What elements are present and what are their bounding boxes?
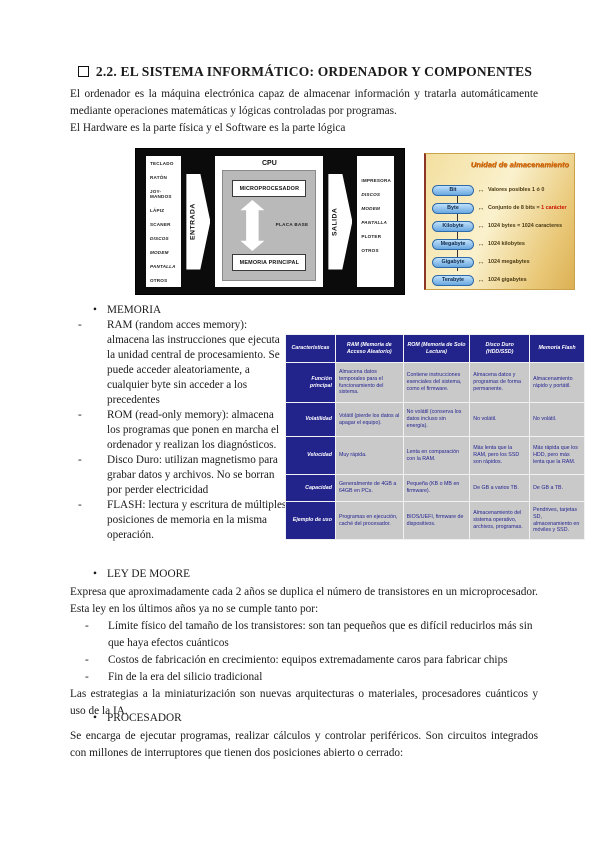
checkbox-icon bbox=[78, 66, 89, 77]
unit-pill: Bit bbox=[432, 185, 474, 196]
memoria-item: -Disco Duro: utilizan magnetismo para gr… bbox=[70, 453, 288, 498]
unit-description: Conjunto de 8 bits = 1 carácter bbox=[488, 205, 567, 211]
left-right-arrow-icon: ↔ bbox=[474, 187, 488, 194]
device-label: LÁPIZ bbox=[150, 208, 178, 213]
memoria-item-text: ROM (read-only memory): almacena los pro… bbox=[107, 408, 288, 453]
memoria-item-text: RAM (random acces memory): almacena las … bbox=[107, 318, 288, 408]
table-cell: Almacena datos temporales para el funcio… bbox=[335, 363, 403, 403]
dash-icon: - bbox=[78, 318, 107, 408]
moore-item-text: Costos de fabricación en crecimiento: eq… bbox=[108, 652, 538, 669]
device-label: PANTALLA bbox=[361, 220, 391, 225]
device-label: MODEM bbox=[150, 250, 178, 255]
storage-row: Bit↔Valores posibles 1 ó 0 bbox=[432, 181, 571, 199]
moore-heading: • LEY DE MOORE bbox=[70, 566, 538, 583]
unit-pill: Byte bbox=[432, 203, 474, 214]
bullet-icon: • bbox=[93, 710, 107, 727]
cpu-label: CPU bbox=[215, 158, 323, 170]
moore-item: -Costos de fabricación en crecimiento: e… bbox=[70, 652, 538, 669]
table-row-label: Capacidad bbox=[286, 475, 336, 502]
storage-units-rows: Bit↔Valores posibles 1 ó 0Byte↔Conjunto … bbox=[432, 181, 571, 285]
table-row: VolatilidadVolátil (pierde los datos al … bbox=[286, 403, 585, 437]
table-row: VelocidadMuy rápida.Lenta en comparación… bbox=[286, 437, 585, 475]
moore-section: • LEY DE MOORE Expresa que aproximadamen… bbox=[70, 566, 538, 720]
table-cell: Más rápida que los HDD, pero más lenta q… bbox=[530, 437, 585, 475]
table-cell: No volátil (conserva los datos incluso s… bbox=[403, 403, 470, 437]
left-right-arrow-icon: ↔ bbox=[474, 241, 488, 248]
memoria-item-text: Disco Duro: utilizan magnetismo para gra… bbox=[107, 453, 288, 498]
storage-panel-title: Unidad de almacenamiento bbox=[471, 160, 569, 169]
memoria-items: -RAM (random acces memory): almacena las… bbox=[70, 318, 288, 543]
output-arrow-icon: SALIDA bbox=[328, 174, 352, 270]
procesador-section: • PROCESADOR Se encarga de ejecutar prog… bbox=[70, 710, 538, 762]
storage-row: Kilobyte↔1024 bytes = 1024 caracteres bbox=[432, 217, 571, 235]
moore-items: -Límite físico del tamaño de los transis… bbox=[70, 618, 538, 686]
left-right-arrow-icon: ↔ bbox=[474, 223, 488, 230]
table-cell: Pequeña (KB o MB en firmware). bbox=[403, 475, 470, 502]
device-label: JOY-MANDOS bbox=[150, 189, 178, 199]
moore-paragraph: Expresa que aproximadamente cada 2 años … bbox=[70, 584, 538, 618]
device-label: DISCOS bbox=[361, 192, 391, 197]
input-arrow-icon: ENTRADA bbox=[186, 174, 210, 270]
hardware-diagram: TECLADORATÓNJOY-MANDOSLÁPIZSCANERDISCOSM… bbox=[135, 148, 405, 295]
table-cell: De GB a TB. bbox=[530, 475, 585, 502]
table-row: CapacidadGeneralmente de 4GB a 64GB en P… bbox=[286, 475, 585, 502]
input-arrow-label: ENTRADA bbox=[186, 174, 200, 270]
table-row-label: Ejemplo de uso bbox=[286, 502, 336, 540]
unit-pill: Kilobyte bbox=[432, 221, 474, 232]
unit-description: 1024 megabytes bbox=[488, 259, 530, 265]
intro-paragraph: El ordenador es la máquina electrónica c… bbox=[70, 86, 538, 137]
table-row-label: Volatilidad bbox=[286, 403, 336, 437]
device-label: TECLADO bbox=[150, 161, 178, 166]
device-label: OTROS bbox=[361, 248, 391, 253]
memoria-heading: • MEMORIA bbox=[70, 303, 288, 318]
unit-description: Valores posibles 1 ó 0 bbox=[488, 187, 544, 193]
dash-icon: - bbox=[78, 408, 107, 453]
moore-item: -Fin de la era del silicio tradicional bbox=[70, 669, 538, 686]
dash-icon: - bbox=[78, 498, 107, 543]
bus-double-arrow-icon bbox=[240, 200, 264, 251]
document-page: 2.2. EL SISTEMA INFORMÁTICO: ORDENADOR Y… bbox=[0, 0, 600, 848]
intro-text: El ordenador es la máquina electrónica c… bbox=[70, 86, 538, 120]
table-cell: Almacena datos y programas de forma perm… bbox=[470, 363, 530, 403]
motherboard-label: PLACA BASE bbox=[276, 222, 309, 227]
left-right-arrow-icon: ↔ bbox=[474, 277, 488, 284]
microprocessor-box: MICROPROCESADOR bbox=[232, 180, 306, 197]
unit-pill: Terabyte bbox=[432, 275, 474, 286]
table-cell: No volátil. bbox=[470, 403, 530, 437]
dash-icon: - bbox=[85, 652, 108, 669]
table-cell: Muy rápida. bbox=[335, 437, 403, 475]
table-row-label: Velocidad bbox=[286, 437, 336, 475]
procesador-paragraph: Se encarga de ejecutar programas, realiz… bbox=[70, 728, 538, 762]
moore-item-text: Fin de la era del silicio tradicional bbox=[108, 669, 538, 686]
unit-description: 1024 gigabytes bbox=[488, 277, 527, 283]
unit-description: 1024 kilobytes bbox=[488, 241, 525, 247]
storage-row: Byte↔Conjunto de 8 bits = 1 carácter bbox=[432, 199, 571, 217]
dash-icon: - bbox=[78, 453, 107, 498]
unit-pill: Gigabyte bbox=[432, 257, 474, 268]
memoria-item: -RAM (random acces memory): almacena las… bbox=[70, 318, 288, 408]
device-label: OTROS bbox=[150, 278, 178, 283]
storage-row: Gigabyte↔1024 megabytes bbox=[432, 253, 571, 271]
table-cell: Generalmente de 4GB a 64GB en PCs. bbox=[335, 475, 403, 502]
memoria-item-text: FLASH: lectura y escritura de múltiples … bbox=[107, 498, 288, 543]
device-label: DISCOS bbox=[150, 236, 178, 241]
cpu-box: CPU MICROPROCESADOR PLACA BASE MEMORIA P… bbox=[215, 156, 323, 287]
memoria-item: -FLASH: lectura y escritura de múltiples… bbox=[70, 498, 288, 543]
device-label: SCANER bbox=[150, 222, 178, 227]
procesador-heading: • PROCESADOR bbox=[70, 710, 538, 727]
page-title-text: 2.2. EL SISTEMA INFORMÁTICO: ORDENADOR Y… bbox=[96, 64, 532, 79]
unit-description-highlight: 1 carácter bbox=[541, 205, 566, 211]
table-cell: Programas en ejecución, caché del proces… bbox=[335, 502, 403, 540]
main-memory-box: MEMORIA PRINCIPAL bbox=[232, 254, 306, 271]
moore-item-text: Límite físico del tamaño de los transist… bbox=[108, 618, 538, 652]
device-label: RATÓN bbox=[150, 175, 178, 180]
table-column-header: Características bbox=[286, 335, 336, 363]
memory-comparison-table: CaracterísticasRAM (Memoria de Acceso Al… bbox=[285, 334, 585, 540]
table-cell: Lenta en comparación con la RAM. bbox=[403, 437, 470, 475]
bullet-icon: • bbox=[93, 566, 107, 583]
table-column-header: Disco Duro (HDD/SSD) bbox=[470, 335, 530, 363]
unit-pill: Megabyte bbox=[432, 239, 474, 250]
table-cell: Volátil (pierde los datos al apagar el e… bbox=[335, 403, 403, 437]
storage-units-panel: Unidad de almacenamiento Bit↔Valores pos… bbox=[424, 153, 575, 290]
table-cell: Contiene instrucciones esenciales del si… bbox=[403, 363, 470, 403]
table-cell: De GB a varios TB. bbox=[470, 475, 530, 502]
memoria-section: • MEMORIA -RAM (random acces memory): al… bbox=[70, 303, 288, 543]
table-column-header: ROM (Memoria de Solo Lectura) bbox=[403, 335, 470, 363]
memoria-item: -ROM (read-only memory): almacena los pr… bbox=[70, 408, 288, 453]
intro-line2: El Hardware es la parte física y el Soft… bbox=[70, 120, 538, 137]
storage-row: Megabyte↔1024 kilobytes bbox=[432, 235, 571, 253]
table-cell: No volátil. bbox=[530, 403, 585, 437]
device-label: PANTALLA bbox=[150, 264, 178, 269]
device-label: MODEM bbox=[361, 206, 391, 211]
table-header-row: CaracterísticasRAM (Memoria de Acceso Al… bbox=[286, 335, 585, 363]
output-arrow-label: SALIDA bbox=[328, 174, 342, 270]
dash-icon: - bbox=[85, 669, 108, 686]
moore-item: -Límite físico del tamaño de los transis… bbox=[70, 618, 538, 652]
left-right-arrow-icon: ↔ bbox=[474, 259, 488, 266]
unit-description: 1024 bytes = 1024 caracteres bbox=[488, 223, 562, 229]
motherboard-area: MICROPROCESADOR PLACA BASE MEMORIA PRINC… bbox=[222, 170, 316, 281]
left-right-arrow-icon: ↔ bbox=[474, 205, 488, 212]
table-column-header: Memoria Flash bbox=[530, 335, 585, 363]
table-cell: BIOS/UEFI, firmware de dispositivos. bbox=[403, 502, 470, 540]
output-devices-list: IMPRESORADISCOSMODEMPANTALLAPLOTEROTROS bbox=[357, 156, 394, 287]
table-cell: Pendrives, tarjetas SD, almacenamiento e… bbox=[530, 502, 585, 540]
table-row: Ejemplo de usoProgramas en ejecución, ca… bbox=[286, 502, 585, 540]
device-label: IMPRESORA bbox=[361, 178, 391, 183]
table-cell: Más lenta que la RAM, pero los SSD son r… bbox=[470, 437, 530, 475]
device-label: PLOTER bbox=[361, 234, 391, 239]
dash-icon: - bbox=[85, 618, 108, 652]
table-row-label: Función principal bbox=[286, 363, 336, 403]
storage-row: Terabyte↔1024 gigabytes bbox=[432, 271, 571, 289]
bullet-icon: • bbox=[93, 303, 107, 318]
table-cell: Almacenamiento del sistema operativo, ar… bbox=[470, 502, 530, 540]
table-column-header: RAM (Memoria de Acceso Aleatorio) bbox=[335, 335, 403, 363]
page-title: 2.2. EL SISTEMA INFORMÁTICO: ORDENADOR Y… bbox=[70, 64, 540, 80]
table-cell: Almacenamiento rápido y portátil. bbox=[530, 363, 585, 403]
input-devices-list: TECLADORATÓNJOY-MANDOSLÁPIZSCANERDISCOSM… bbox=[146, 156, 181, 287]
table-row: Función principalAlmacena datos temporal… bbox=[286, 363, 585, 403]
